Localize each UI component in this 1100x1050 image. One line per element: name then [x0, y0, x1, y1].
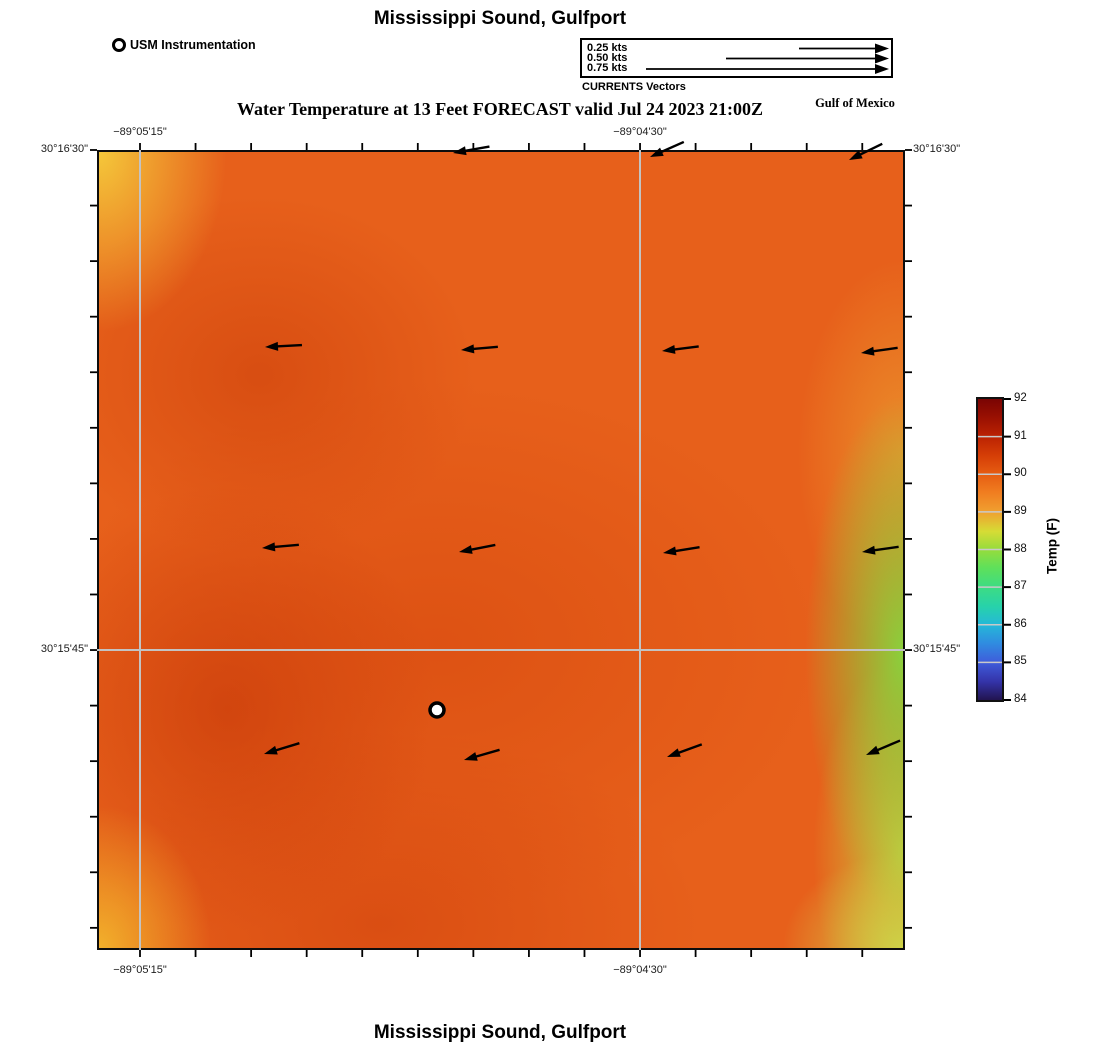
colorbar-tick-label: 85	[1014, 655, 1027, 667]
currents-legend-box: 0.25 kts 0.50 kts 0.75 kts	[580, 38, 893, 78]
page-title: Mississippi Sound, Gulfport	[0, 8, 1000, 30]
colorbar-tick-label: 86	[1014, 618, 1027, 630]
station-marker-icon	[112, 38, 126, 52]
lat-label-left-south: 30°15'45"	[26, 643, 88, 655]
colorbar-tick-label: 84	[1014, 693, 1027, 705]
lon-label-bottom-east: −89°04'30"	[613, 964, 667, 976]
lon-label-bottom-west: −89°05'15"	[113, 964, 167, 976]
colorbar-axis-label: Temp (F)	[1045, 518, 1060, 574]
region-label: Gulf of Mexico	[770, 96, 940, 111]
lon-label-top-west: −89°05'15"	[113, 126, 167, 138]
footer-title: Mississippi Sound, Gulfport	[0, 1022, 1000, 1044]
colorbar-tick-label: 89	[1014, 505, 1027, 517]
colorbar-tick-label: 92	[1014, 392, 1027, 404]
currents-legend-caption: CURRENTS Vectors	[582, 81, 686, 93]
colorbar-tick-label: 90	[1014, 467, 1027, 479]
colorbar-tick-label: 87	[1014, 580, 1027, 592]
station-legend-label: USM Instrumentation	[130, 38, 256, 52]
currents-speed-label: 0.75 kts	[587, 63, 627, 74]
colorbar-tick-label: 88	[1014, 543, 1027, 555]
station-legend: USM Instrumentation	[112, 37, 256, 53]
lat-label-left-north: 30°16'30"	[26, 143, 88, 155]
temperature-heatmap	[97, 150, 905, 950]
plot-canvas: Mississippi Sound, Gulfport USM Instrume…	[0, 0, 1100, 1050]
lat-label-right-south: 30°15'45"	[913, 643, 960, 655]
lat-label-right-north: 30°16'30"	[913, 143, 960, 155]
colorbar-tick-label: 91	[1014, 430, 1027, 442]
lon-label-top-east: −89°04'30"	[613, 126, 667, 138]
colorbar	[976, 397, 1004, 702]
